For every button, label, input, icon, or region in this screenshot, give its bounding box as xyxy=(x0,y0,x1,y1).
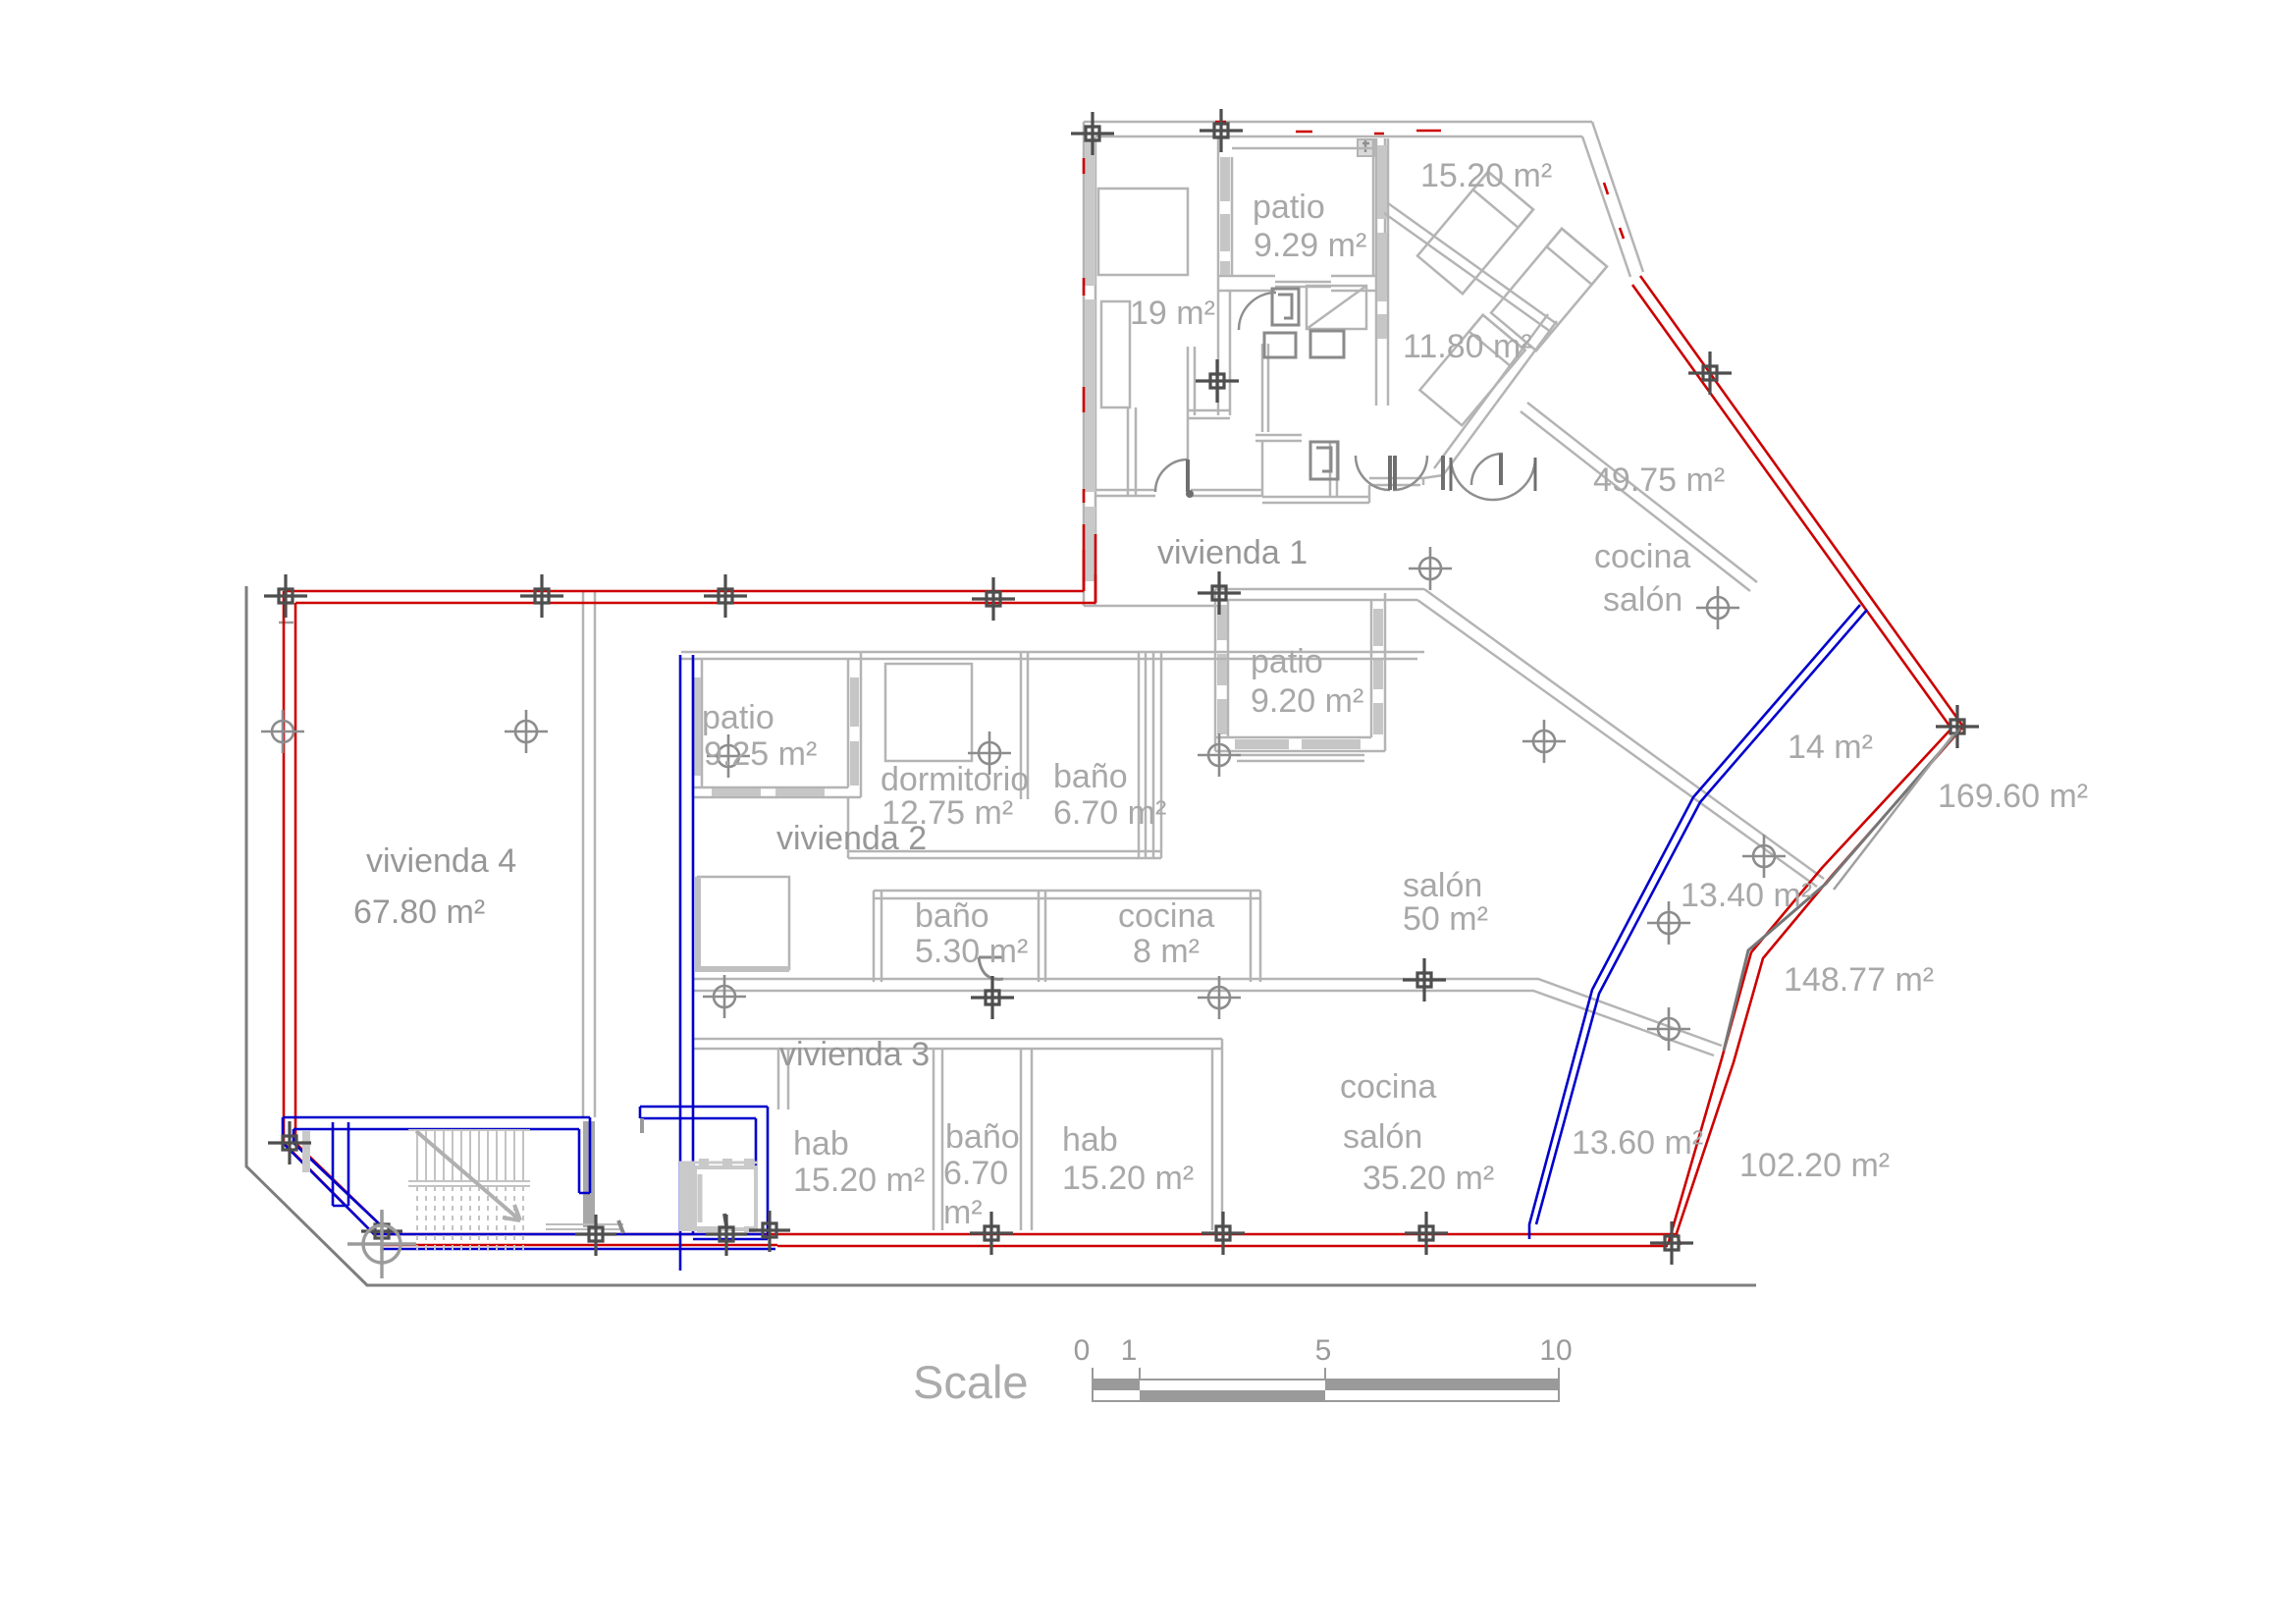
svg-text:8 m²: 8 m² xyxy=(1133,933,1200,970)
svg-text:Scale: Scale xyxy=(913,1356,1029,1408)
svg-text:baño: baño xyxy=(945,1118,1020,1156)
svg-text:cocina: cocina xyxy=(1118,897,1214,935)
svg-text:patio: patio xyxy=(702,699,774,736)
svg-text:patio: patio xyxy=(1253,189,1325,226)
svg-text:1: 1 xyxy=(1121,1334,1138,1367)
svg-text:vivienda 3: vivienda 3 xyxy=(779,1036,930,1073)
svg-text:19 m²: 19 m² xyxy=(1130,295,1215,332)
svg-text:35.20 m²: 35.20 m² xyxy=(1362,1160,1494,1197)
svg-text:baño: baño xyxy=(915,897,989,935)
svg-text:6.70 m²: 6.70 m² xyxy=(1053,794,1166,832)
svg-text:11.80 m²: 11.80 m² xyxy=(1403,328,1532,365)
svg-text:169.60 m²: 169.60 m² xyxy=(1938,778,2088,815)
svg-text:5: 5 xyxy=(1315,1334,1332,1367)
svg-text:5.30 m²: 5.30 m² xyxy=(915,933,1028,970)
svg-text:102.20 m²: 102.20 m² xyxy=(1739,1147,1890,1184)
svg-text:50 m²: 50 m² xyxy=(1403,900,1488,938)
svg-text:hab: hab xyxy=(793,1125,849,1163)
svg-text:9.25 m²: 9.25 m² xyxy=(704,735,817,773)
svg-text:dormitorio: dormitorio xyxy=(881,761,1029,798)
svg-text:6.70: 6.70 xyxy=(943,1155,1008,1192)
svg-text:0: 0 xyxy=(1074,1334,1091,1367)
svg-text:9.29 m²: 9.29 m² xyxy=(1254,227,1366,264)
svg-text:cocina: cocina xyxy=(1340,1068,1436,1106)
svg-text:14 m²: 14 m² xyxy=(1788,729,1873,766)
svg-text:salón: salón xyxy=(1343,1118,1422,1156)
svg-text:15.20 m²: 15.20 m² xyxy=(1062,1160,1194,1197)
svg-text:67.80 m²: 67.80 m² xyxy=(353,893,485,931)
svg-text:13.40 m²: 13.40 m² xyxy=(1681,877,1812,914)
svg-text:m²: m² xyxy=(943,1194,983,1231)
svg-text:patio: patio xyxy=(1251,643,1323,680)
svg-text:salón: salón xyxy=(1403,867,1482,904)
svg-text:vivienda 1: vivienda 1 xyxy=(1157,534,1308,571)
svg-text:15.20 m²: 15.20 m² xyxy=(1420,157,1552,194)
svg-text:vivienda 2: vivienda 2 xyxy=(776,820,927,857)
svg-text:vivienda 4: vivienda 4 xyxy=(366,842,516,880)
svg-text:13.60 m²: 13.60 m² xyxy=(1572,1124,1703,1162)
svg-text:15.20 m²: 15.20 m² xyxy=(793,1162,925,1199)
svg-text:cocina: cocina xyxy=(1594,538,1690,575)
svg-text:salón: salón xyxy=(1603,581,1682,619)
svg-text:10: 10 xyxy=(1539,1334,1572,1367)
svg-text:148.77 m²: 148.77 m² xyxy=(1784,961,1934,999)
svg-text:baño: baño xyxy=(1053,758,1128,795)
svg-text:49.75 m²: 49.75 m² xyxy=(1593,461,1725,499)
svg-text:9.20 m²: 9.20 m² xyxy=(1251,682,1363,720)
svg-text:hab: hab xyxy=(1062,1121,1118,1159)
